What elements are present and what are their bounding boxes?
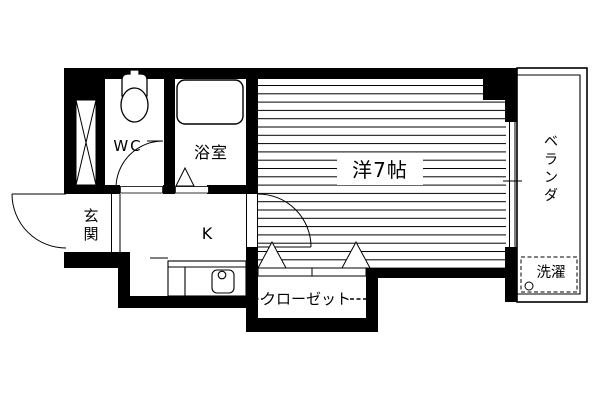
bathtub-icon [177, 80, 243, 124]
toilet-icon [121, 70, 148, 122]
wall-wc-bath [164, 79, 175, 194]
wall-bath-right [246, 79, 258, 194]
wall-main-bottom [366, 268, 517, 278]
entrance-label: 玄 関 [83, 207, 98, 243]
wc-label: WC [113, 137, 142, 155]
main-room-label: 洋7帖 [352, 158, 408, 182]
floorplan-svg: WC 浴室 洋7帖 K 玄 関 ベ ラ ン ダ クローゼット 洗濯 [0, 0, 600, 400]
veranda-label-char-4: ダ [544, 188, 558, 204]
laundry-label: 洗濯 [537, 264, 566, 281]
veranda-label-char-3: ン [544, 170, 558, 186]
entrance-label-char-1: 玄 [83, 207, 98, 225]
wc-threshold [121, 187, 163, 194]
faucet-icon [218, 271, 226, 279]
closet-label: クローゼット [261, 290, 351, 308]
pipe-shaft-hatch [76, 100, 96, 185]
entrance-label-char-2: 関 [83, 225, 98, 243]
veranda-label-char-1: ベ [544, 134, 558, 150]
kitchen-label: K [202, 224, 213, 243]
washer-drain-icon [525, 282, 533, 290]
wall-closet-bottom [246, 318, 378, 332]
wall-window-top [505, 75, 517, 122]
wall-kitchen-bottom [118, 296, 246, 308]
bath-label: 浴室 [194, 143, 228, 162]
veranda-label-char-2: ラ [544, 152, 558, 168]
wall-window-bottom [505, 247, 517, 302]
bath-threshold [176, 187, 209, 194]
floorplan-canvas: WC 浴室 洋7帖 K 玄 関 ベ ラ ン ダ クローゼット 洗濯 [0, 0, 600, 400]
